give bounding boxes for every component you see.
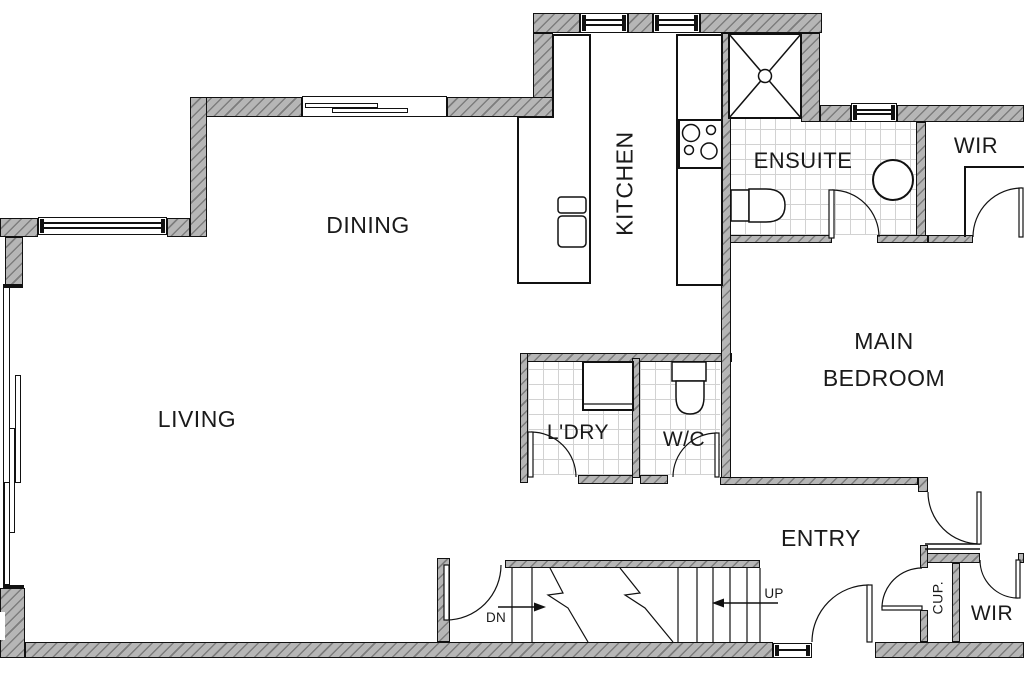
cupboard-head-line [925, 544, 980, 549]
floor-plan: DINING LIVING KITCHEN ENSUITE WIR MAIN B… [0, 0, 1024, 683]
door-arc-ensuite [832, 190, 879, 237]
door-arc-cupboard [882, 568, 922, 608]
door-arc-bedroom [928, 492, 980, 544]
room-label-wc: W/C [634, 428, 734, 451]
toilet-icon-ensuite [731, 189, 785, 222]
room-label-entry: ENTRY [751, 526, 891, 551]
stair-break-lines [548, 568, 673, 642]
dn-arrow-icon [534, 603, 546, 612]
door-leaf-ensuite [829, 190, 834, 238]
stair-label-dn: DN [480, 611, 512, 626]
door-arc-wir-top [973, 188, 1022, 237]
room-label-ensuite: ENSUITE [733, 149, 873, 173]
toilet-icon-wc [672, 362, 706, 414]
door-leaf-wir-top [1019, 188, 1023, 237]
up-arrow-icon [712, 599, 724, 608]
room-label-main-bedroom-line1: MAIN [854, 328, 914, 354]
room-label-main-bedroom-line2: BEDROOM [823, 365, 945, 391]
stair-direction-arrows [498, 599, 778, 612]
basin-icon [873, 160, 913, 200]
kitchen-bench-left [518, 35, 590, 283]
room-label-main-bedroom: MAIN BEDROOM [794, 323, 974, 397]
kitchen-bench-right [677, 35, 722, 285]
sink-bowl-large [558, 216, 586, 247]
washing-machine-icon [583, 362, 633, 410]
room-label-wir-bottom: WIR [952, 602, 1024, 625]
door-arc-wir-bottom [980, 560, 1018, 598]
room-label-laundry: L'DRY [518, 421, 638, 444]
door-leaf-wir-bottom [1016, 560, 1020, 598]
sink-bowl-small [558, 197, 586, 213]
stair-label-up: UP [758, 587, 790, 602]
door-leaf-front-entry [867, 585, 872, 642]
door-leaf-stairs [444, 565, 449, 620]
door-arc-front-entry [812, 585, 869, 642]
door-leaf-cupboard [882, 606, 922, 610]
room-label-living: LIVING [126, 407, 268, 432]
room-label-cupboard: CUP. [930, 571, 945, 625]
room-label-kitchen: KITCHEN [612, 114, 637, 254]
room-label-dining: DINING [297, 213, 439, 238]
room-label-wir-top: WIR [936, 134, 1016, 158]
cooktop-icon [679, 120, 722, 168]
door-leaf-bedroom [977, 492, 981, 544]
shower-icon [729, 34, 801, 118]
